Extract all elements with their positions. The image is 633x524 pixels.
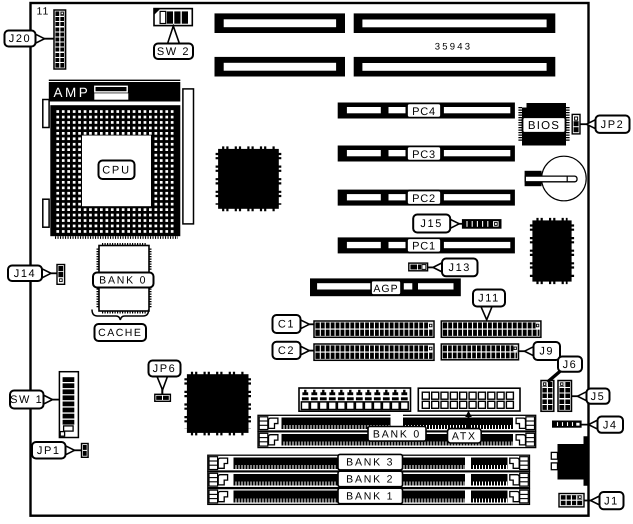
svg-text:BIOS: BIOS xyxy=(528,120,560,132)
svg-text:C2: C2 xyxy=(278,345,295,357)
svg-text:J6: J6 xyxy=(563,359,578,371)
svg-text:SW 1: SW 1 xyxy=(10,394,43,406)
svg-text:J1: J1 xyxy=(604,495,619,507)
svg-text:J14: J14 xyxy=(14,268,37,280)
svg-text:CPU: CPU xyxy=(102,165,131,177)
svg-text:J4: J4 xyxy=(603,419,618,431)
svg-text:JP1: JP1 xyxy=(37,445,61,457)
svg-text:PC3: PC3 xyxy=(412,149,436,161)
svg-text:J13: J13 xyxy=(448,262,471,274)
svg-text:BANK 2: BANK 2 xyxy=(346,474,394,486)
svg-text:BANK 1: BANK 1 xyxy=(346,491,394,503)
svg-text:JP6: JP6 xyxy=(153,363,177,375)
svg-text:J9: J9 xyxy=(539,346,554,358)
svg-text:J5: J5 xyxy=(591,391,606,403)
svg-text:AGP: AGP xyxy=(373,283,398,295)
svg-text:BANK 0: BANK 0 xyxy=(373,428,421,440)
svg-text:PC1: PC1 xyxy=(412,241,436,253)
svg-text:J15: J15 xyxy=(420,218,443,230)
svg-text:J11: J11 xyxy=(478,293,500,305)
svg-text:CACHE: CACHE xyxy=(98,327,142,339)
svg-text:SW 2: SW 2 xyxy=(157,46,190,58)
svg-text:11: 11 xyxy=(37,6,50,18)
svg-text:BANK 0: BANK 0 xyxy=(99,275,147,287)
svg-text:JP2: JP2 xyxy=(601,119,625,131)
svg-text:BANK 3: BANK 3 xyxy=(346,457,394,469)
svg-text:C1: C1 xyxy=(278,319,295,331)
svg-text:J20: J20 xyxy=(9,33,32,45)
svg-text:35943: 35943 xyxy=(435,41,472,52)
svg-text:AMP: AMP xyxy=(54,85,91,100)
svg-text:PC2: PC2 xyxy=(412,193,436,205)
svg-text:ATX: ATX xyxy=(452,430,477,442)
svg-text:PC4: PC4 xyxy=(412,106,436,118)
